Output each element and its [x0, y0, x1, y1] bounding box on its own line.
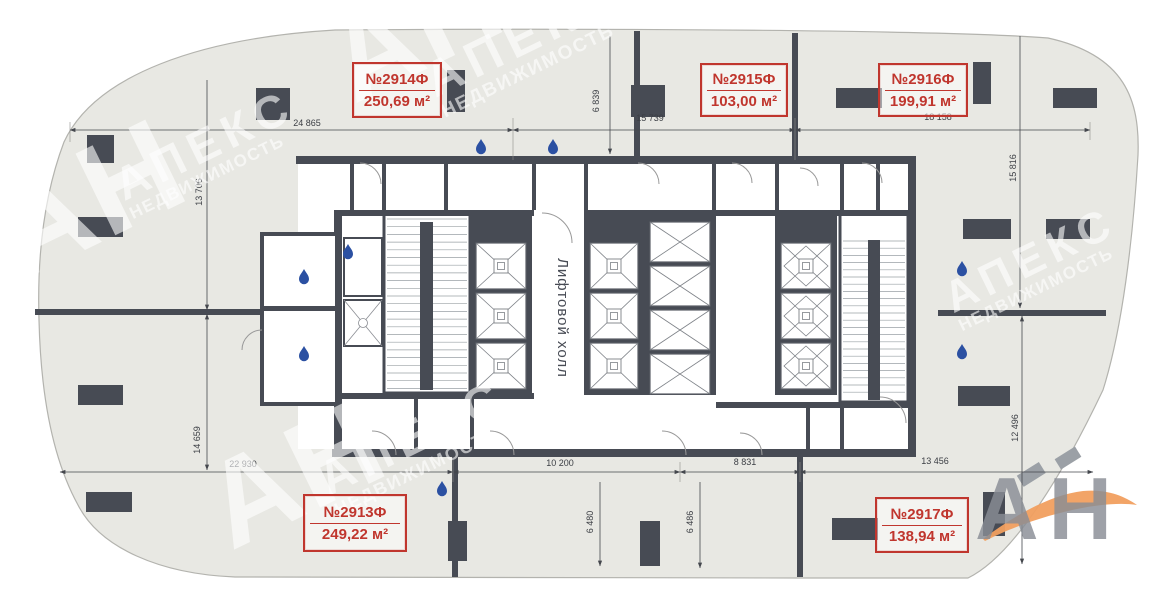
unit-area: 199,91 м²	[880, 91, 966, 111]
unit-area: 138,94 м²	[877, 526, 967, 546]
unit-area: 249,22 м²	[305, 524, 405, 544]
unit-area: 103,00 м²	[702, 91, 786, 111]
unit-number: №2916Ф	[885, 70, 961, 91]
unit-label: №2917Ф138,94 м²	[875, 497, 969, 553]
unit-number: №2917Ф	[882, 505, 962, 526]
unit-label: №2916Ф199,91 м²	[878, 63, 968, 117]
unit-label: №2915Ф103,00 м²	[700, 63, 788, 117]
unit-number: №2913Ф	[310, 503, 400, 524]
brand-logo-text: АН	[975, 465, 1122, 553]
unit-label: №2913Ф249,22 м²	[303, 494, 407, 552]
unit-number: №2914Ф	[359, 70, 435, 91]
floor-plan-page: 24 86515 73918 15822 93010 2008 83113 45…	[0, 0, 1157, 600]
unit-area: 250,69 м²	[354, 91, 440, 111]
unit-number: №2915Ф	[707, 70, 781, 91]
brand-logo: АН	[965, 455, 1157, 575]
unit-label: №2914Ф250,69 м²	[352, 62, 442, 118]
